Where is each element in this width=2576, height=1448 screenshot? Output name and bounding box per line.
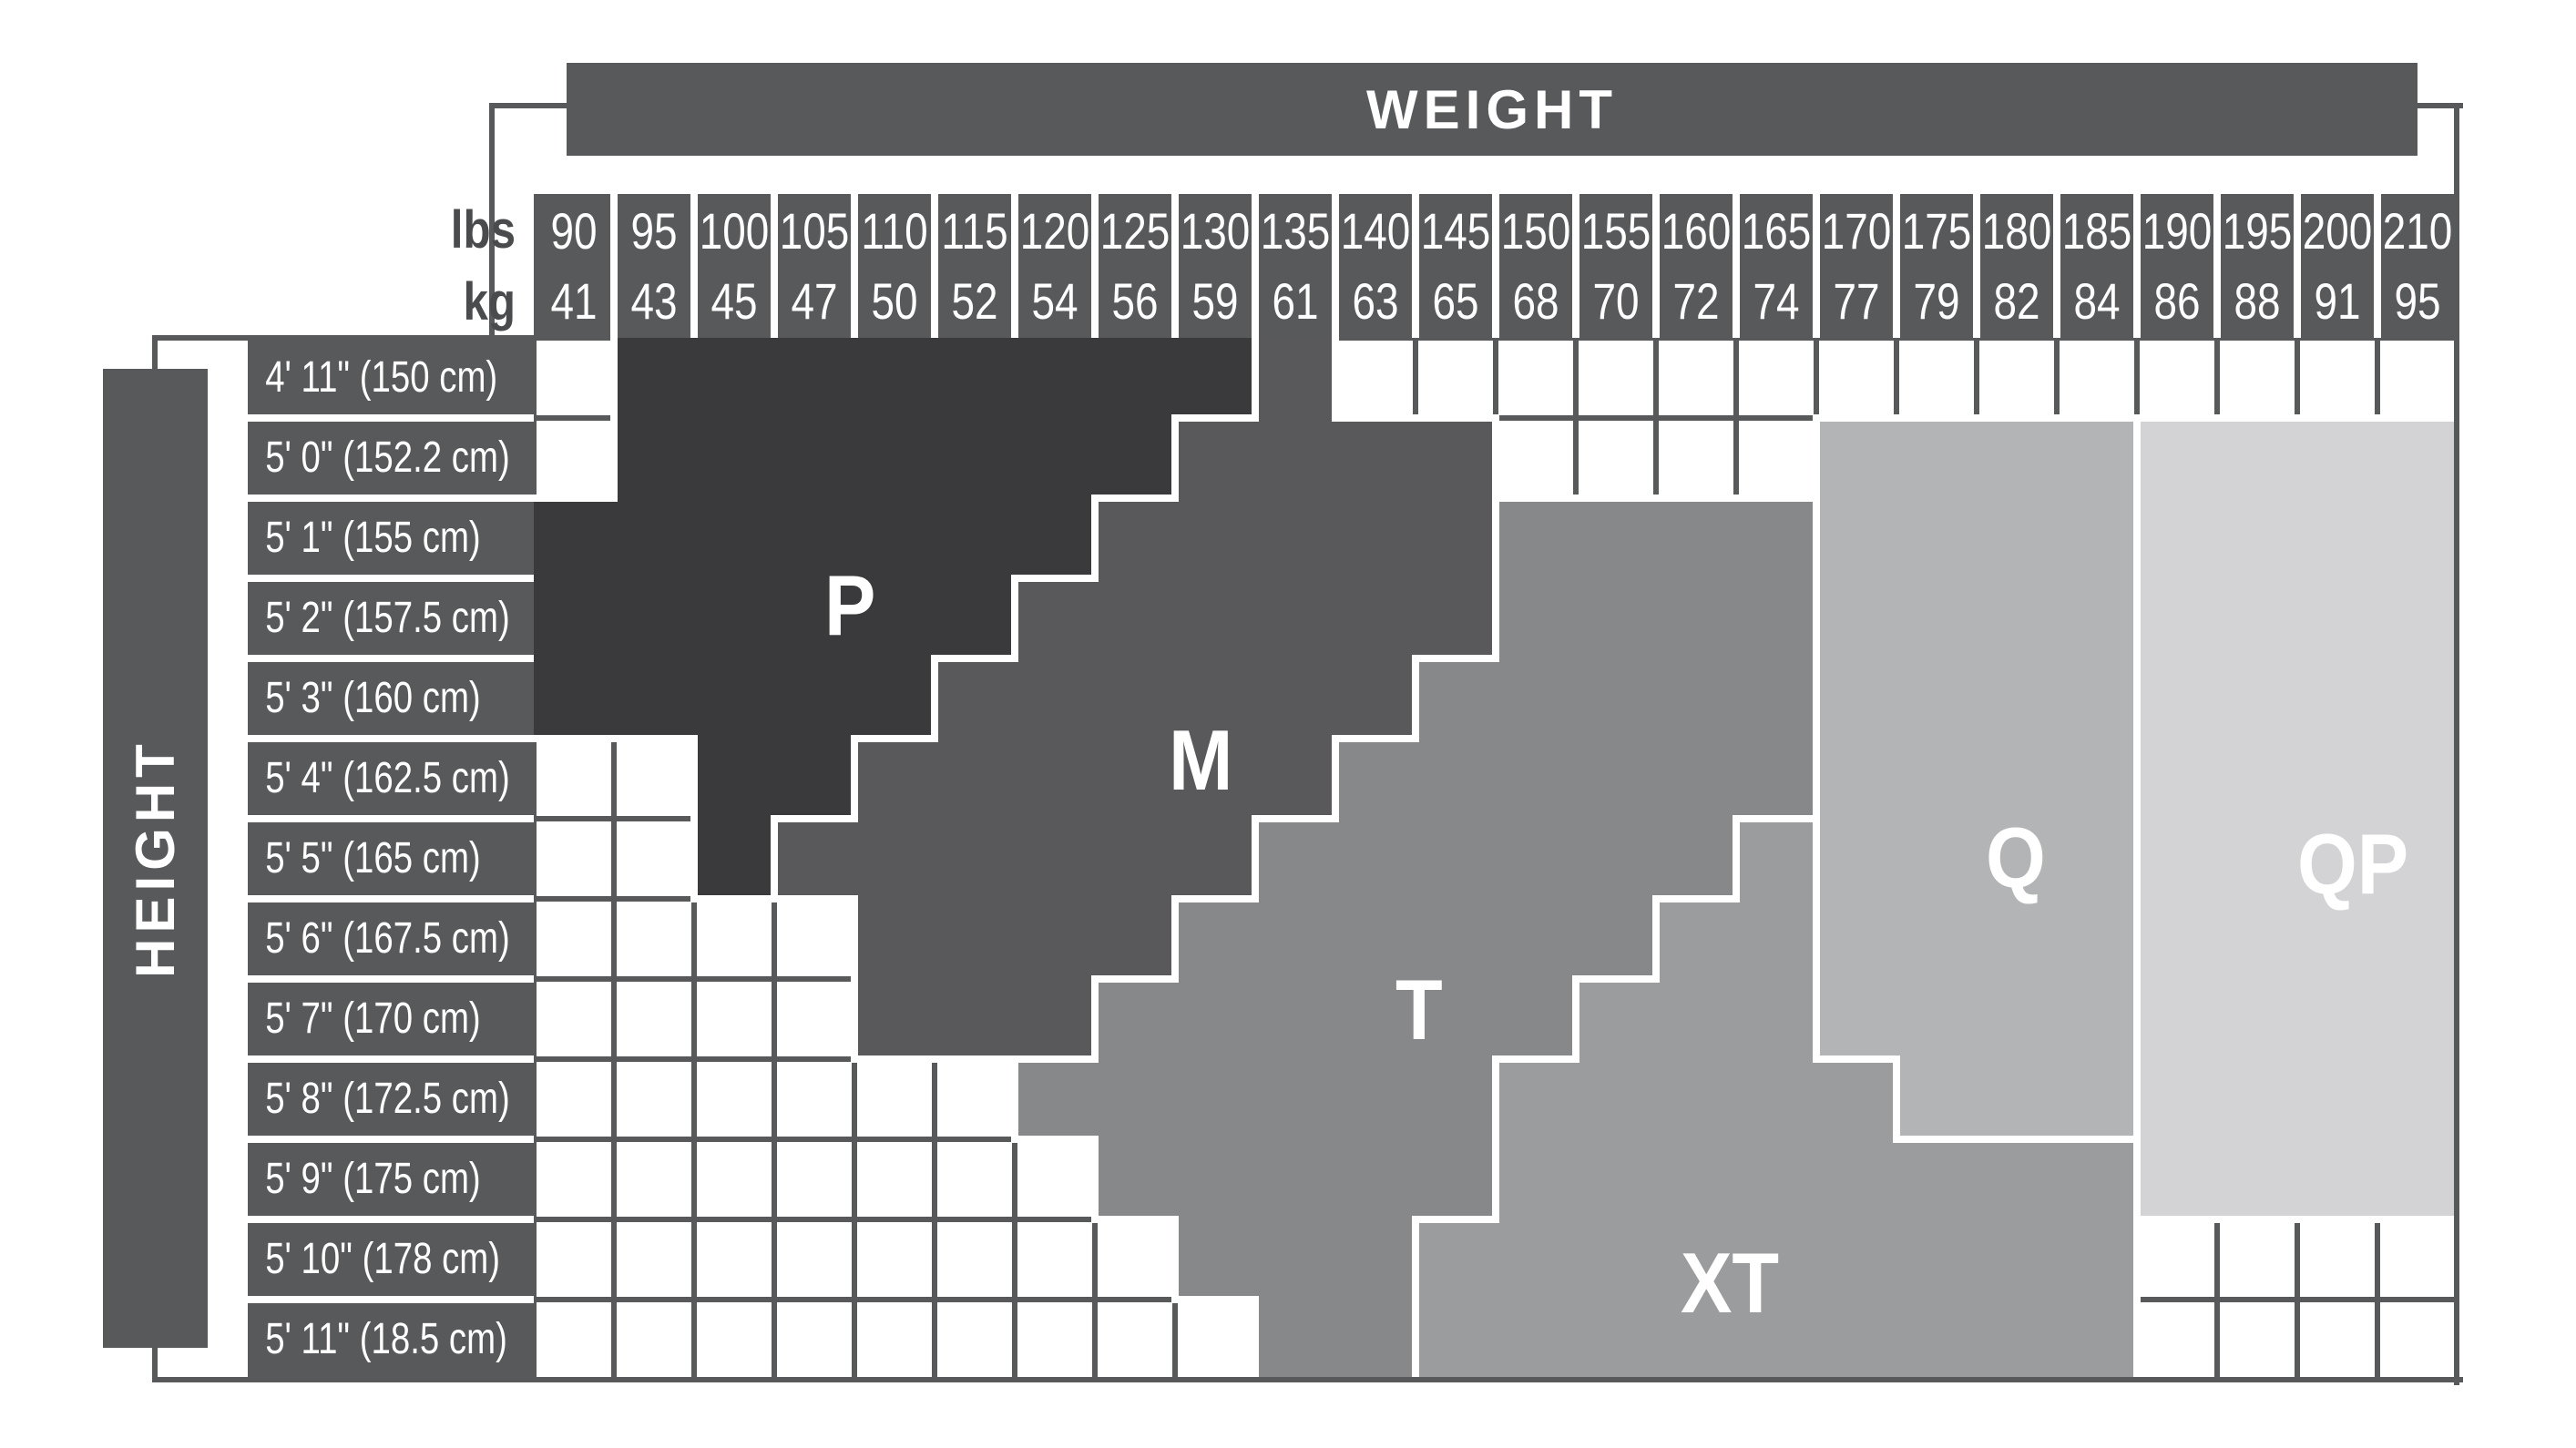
grid-cell-R (2377, 739, 2458, 820)
weight-header-separator (2213, 194, 2221, 338)
lattice-line (772, 979, 777, 1059)
height-label-text: 5' 1" (155 cm) (248, 516, 481, 560)
region-boundary (1652, 495, 1740, 502)
region-boundary (1252, 1296, 1259, 1383)
region-boundary (851, 735, 858, 822)
lattice-line (774, 976, 854, 982)
lattice-line (614, 976, 694, 982)
weight-axis-banner: WEIGHT (567, 63, 2418, 156)
grid-cell-M (935, 899, 1016, 980)
grid-cell-R (2297, 498, 2378, 579)
lattice-line (935, 1297, 1015, 1302)
region-boundary (1813, 575, 1820, 662)
grid-cell-R (2297, 418, 2378, 499)
lattice-line (534, 1056, 614, 1062)
region-boundary (690, 735, 698, 822)
lattice-line (534, 1217, 614, 1222)
weight-kg-value: 59 (1182, 266, 1248, 336)
grid-cell-R (2377, 1139, 2458, 1220)
grid-cell-Q (1816, 498, 1897, 579)
grid-cell-T (1736, 739, 1817, 820)
lattice-line (2297, 1297, 2377, 1302)
lattice-line (932, 1300, 937, 1380)
grid-cell-M (1255, 418, 1336, 499)
lattice-line (691, 899, 697, 979)
grid-cell-M (1095, 578, 1176, 659)
region-boundary (2213, 414, 2301, 422)
height-label: 5' 9" (175 cm) (248, 1139, 534, 1219)
grid-cell-T (1576, 658, 1657, 739)
grid-cell-Q (1977, 979, 2058, 1060)
height-label: 5' 5" (165 cm) (248, 819, 534, 899)
grid-cell-M (935, 658, 1016, 739)
region-boundary (1332, 334, 1339, 422)
grid-cell-M (1015, 899, 1096, 980)
grid-cell-M (1175, 418, 1256, 499)
lattice-line (1095, 1297, 1175, 1302)
weight-axis-title: WEIGHT (1366, 78, 1618, 141)
height-label: 5' 6" (167.5 cm) (248, 899, 534, 979)
height-label-text: 5' 0" (152.2 cm) (248, 436, 510, 480)
grid-cell-T (1175, 1219, 1256, 1300)
region-boundary (1492, 414, 1499, 502)
grid-cell-X (1816, 1139, 1897, 1220)
grid-cell-X (1656, 899, 1737, 980)
grid-cell-P (935, 498, 1016, 579)
weight-lbs-value: 160 (1663, 196, 1729, 266)
weight-kg-value: 47 (782, 266, 847, 336)
grid-cell-R (2377, 498, 2458, 579)
grid-cell-X (1977, 1139, 2058, 1220)
grid-cell-T (1175, 1139, 1256, 1220)
lattice-line (1656, 415, 1736, 421)
region-boundary (931, 1055, 1018, 1063)
grid-cell-Q (1896, 899, 1978, 980)
region-boundary (2133, 735, 2141, 822)
region-boundary (1893, 1136, 1980, 1143)
grid-cell-T (1496, 578, 1577, 659)
weight-lbs-value: 155 (1583, 196, 1649, 266)
weight-lbs-value: 125 (1102, 196, 1168, 266)
grid-cell-X (1416, 1219, 1497, 1300)
height-label-text: 5' 4" (162.5 cm) (248, 757, 510, 800)
grid-cell-T (1656, 498, 1737, 579)
region-boundary (2133, 1136, 2141, 1223)
grid-cell-P (534, 498, 615, 579)
height-label-text: 5' 2" (157.5 cm) (248, 597, 510, 640)
weight-header-separator (2374, 194, 2381, 338)
lattice-line (1573, 418, 1579, 498)
grid-cell-M (1416, 498, 1497, 579)
region-boundary (1572, 495, 1660, 502)
grid-cell-M (935, 739, 1016, 820)
grid-cell-R (2217, 418, 2298, 499)
grid-cell-R (2217, 498, 2298, 579)
grid-cell-P (694, 819, 775, 900)
region-boundary (1813, 1055, 1900, 1063)
grid-cell-T (1175, 899, 1256, 980)
grid-cell-X (2057, 1219, 2138, 1300)
region-boundary (771, 895, 858, 902)
grid-cell-P (694, 739, 775, 820)
height-label-text: 5' 7" (170 cm) (248, 997, 481, 1041)
grid-cell-T (1736, 498, 1817, 579)
grid-cell-P (1015, 338, 1096, 419)
lattice-line (1894, 338, 1899, 418)
region-boundary (1813, 414, 1820, 502)
grid-cell-X (1896, 1300, 1978, 1381)
grid-cell-T (1656, 739, 1737, 820)
region-boundary (2133, 815, 2141, 902)
weight-kg-value: 82 (1984, 266, 2050, 336)
grid-cell-X (1416, 1300, 1497, 1381)
weight-lbs-value: 210 (2385, 196, 2450, 266)
weight-kg-value: 86 (2144, 266, 2210, 336)
weight-lbs-value: 175 (1904, 196, 1969, 266)
weight-kg-value: 95 (2385, 266, 2450, 336)
grid-cell-P (694, 578, 775, 659)
lattice-line (1576, 415, 1656, 421)
grid-cell-X (1896, 1139, 1978, 1220)
grid-cell-M (1255, 498, 1336, 579)
lattice-line (1814, 338, 1819, 418)
grid-cell-P (1175, 338, 1256, 419)
grid-cell-R (2217, 819, 2298, 900)
grid-cell-X (1576, 1139, 1657, 1220)
region-boundary (1091, 975, 1099, 1063)
lattice-line (932, 1219, 937, 1300)
grid-cell-P (1095, 338, 1176, 419)
region-boundary (1893, 1055, 1900, 1143)
lattice-line (2377, 1297, 2458, 1302)
weight-lbs-value: 140 (1343, 196, 1408, 266)
lattice-line (534, 816, 614, 821)
lattice-line (534, 896, 614, 902)
grid-cell-P (614, 498, 695, 579)
region-boundary (2133, 895, 2141, 983)
grid-cell-P (614, 658, 695, 739)
grid-cell-Q (1816, 739, 1897, 820)
grid-cell-R (2137, 819, 2218, 900)
grid-cell-M (1335, 418, 1416, 499)
grid-cell-P (854, 338, 935, 419)
lattice-line (534, 976, 614, 982)
grid-cell-Q (1896, 1059, 1978, 1140)
unit-label-lbs: lbs (332, 194, 516, 266)
region-boundary (530, 735, 618, 742)
weight-header-separator (2053, 194, 2060, 338)
grid-cell-M (1255, 338, 1336, 419)
region-boundary (1091, 495, 1179, 502)
grid-cell-Q (1977, 899, 2058, 980)
weight-header-separator (1652, 194, 1660, 338)
grid-cell-P (534, 658, 615, 739)
lattice-line (2295, 338, 2300, 418)
region-boundary (1171, 895, 1259, 902)
grid-cell-X (1816, 1059, 1897, 1140)
grid-cell-Q (2057, 739, 2138, 820)
region-boundary (1171, 414, 1259, 422)
grid-cell-Q (1816, 658, 1897, 739)
lattice-line (774, 1297, 854, 1302)
grid-cell-Q (2057, 498, 2138, 579)
grid-cell-X (1656, 1059, 1737, 1140)
grid-cell-Q (1977, 578, 2058, 659)
height-label: 5' 11" (18.5 cm) (248, 1300, 534, 1380)
grid-cell-X (1977, 1219, 2058, 1300)
weight-header-separator (1171, 194, 1179, 338)
lattice-line (691, 1300, 697, 1380)
lattice-line (1974, 338, 1979, 418)
height-label: 5' 10" (178 cm) (248, 1219, 534, 1300)
grid-cell-P (854, 418, 935, 499)
lattice-line (614, 1297, 694, 1302)
lattice-line (854, 1137, 935, 1142)
region-boundary (610, 334, 618, 422)
weight-lbs-value: 135 (1262, 196, 1328, 266)
grid-cell-P (774, 418, 855, 499)
grid-cell-Q (2057, 658, 2138, 739)
lattice-line (611, 1300, 617, 1380)
region-boundary (1412, 1216, 1419, 1303)
grid-cell-T (1255, 979, 1336, 1060)
region-boundary (690, 895, 778, 902)
lattice-line (611, 979, 617, 1059)
grid-cell-Q (1896, 979, 1978, 1060)
region-boundary (1652, 895, 1740, 902)
lattice-line (2054, 338, 2060, 418)
lattice-line (614, 816, 694, 821)
grid-cell-X (1736, 1139, 1817, 1220)
weight-kg-value: 50 (862, 266, 927, 336)
grid-cell-M (1095, 819, 1176, 900)
grid-cell-R (2217, 979, 2298, 1060)
grid-cell-X (1576, 1059, 1657, 1140)
weight-lbs-value: 100 (701, 196, 767, 266)
grid-cell-X (1496, 1219, 1577, 1300)
weight-header-separator (1973, 194, 1980, 338)
lattice-line (772, 1219, 777, 1300)
lattice-line (691, 1059, 697, 1139)
grid-cell-M (1416, 578, 1497, 659)
region-boundary (2133, 495, 2141, 582)
grid-cell-X (2057, 1300, 2138, 1381)
grid-cell-M (1175, 578, 1256, 659)
height-label-text: 5' 8" (172.5 cm) (248, 1077, 510, 1121)
lattice-line (772, 899, 777, 979)
region-boundary (931, 655, 1018, 662)
lattice-line (935, 1137, 1015, 1142)
grid-cell-T (1416, 819, 1497, 900)
lattice-line (611, 1219, 617, 1300)
region-boundary (2133, 1296, 2141, 1383)
region-boundary (1492, 575, 1499, 662)
grid-cell-T (1416, 1059, 1497, 1140)
height-label: 5' 2" (157.5 cm) (248, 578, 534, 658)
weight-kg-value: 43 (621, 266, 687, 336)
grid-cell-P (534, 578, 615, 659)
grid-cell-R (2137, 739, 2218, 820)
grid-cell-T (1416, 658, 1497, 739)
region-boundary (2133, 1216, 2141, 1303)
lattice-line (1092, 1300, 1098, 1380)
grid-cell-Q (1896, 819, 1978, 900)
grid-cell-R (2297, 1059, 2378, 1140)
region-boundary (1813, 815, 1820, 902)
grid-cell-R (2297, 578, 2378, 659)
height-label: 5' 0" (152.2 cm) (248, 418, 534, 498)
grid-cell-Q (1896, 418, 1978, 499)
height-label: 5' 3" (160 cm) (248, 658, 534, 739)
region-boundary (1492, 495, 1579, 502)
grid-cell-R (2137, 1059, 2218, 1140)
grid-cell-M (1015, 979, 1096, 1060)
region-boundary (1652, 895, 1660, 983)
weight-lbs-value: 190 (2144, 196, 2210, 266)
weight-kg-value: 88 (2224, 266, 2290, 336)
height-label-text: 5' 9" (175 cm) (248, 1157, 481, 1201)
grid-cell-T (1015, 1059, 1096, 1140)
lattice-line (2214, 338, 2220, 418)
weight-lbs-value: 145 (1423, 196, 1488, 266)
lattice-line (611, 1059, 617, 1139)
grid-cell-T (1335, 1219, 1416, 1300)
grid-cell-M (1416, 418, 1497, 499)
region-boundary (2133, 414, 2221, 422)
region-boundary (1252, 815, 1259, 902)
lattice-line (611, 1139, 617, 1219)
grid-cell-T (1255, 899, 1336, 980)
grid-cell-P (614, 418, 695, 499)
lattice-line (1653, 338, 1659, 418)
lattice-line (774, 1217, 854, 1222)
grid-cell-P (774, 338, 855, 419)
height-label-text: 5' 11" (18.5 cm) (248, 1318, 507, 1361)
region-boundary (2213, 1216, 2301, 1223)
weight-lbs-value: 95 (621, 196, 687, 266)
grid-cell-T (1576, 899, 1657, 980)
grid-cell-M (854, 739, 935, 820)
grid-cell-R (2137, 1139, 2218, 1220)
grid-cell-T (1095, 979, 1176, 1060)
region-boundary (851, 735, 938, 742)
grid-cell-X (1816, 1219, 1897, 1300)
region-boundary (610, 735, 698, 742)
grid-cell-M (935, 979, 1016, 1060)
lattice-line (854, 1217, 935, 1222)
grid-cell-Q (1896, 658, 1978, 739)
region-boundary (1011, 1136, 1099, 1143)
grid-cell-P (1095, 418, 1176, 499)
lattice-line (1733, 338, 1739, 418)
grid-cell-R (2137, 498, 2218, 579)
grid-cell-M (1015, 819, 1096, 900)
region-boundary (1332, 414, 1419, 422)
region-boundary (1813, 735, 1820, 822)
height-label: 5' 1" (155 cm) (248, 498, 534, 578)
grid-cell-M (1095, 739, 1176, 820)
lattice-line (1015, 1217, 1095, 1222)
grid-cell-Q (2057, 578, 2138, 659)
grid-cell-M (935, 819, 1016, 900)
weight-kg-value: 91 (2305, 266, 2370, 336)
weight-lbs-value: 115 (942, 196, 1007, 266)
lattice-line (852, 1219, 857, 1300)
grid-cell-T (1255, 819, 1336, 900)
lattice-line (2137, 1297, 2217, 1302)
grid-cell-P (774, 739, 855, 820)
lattice-line (614, 1217, 694, 1222)
grid-cell-R (2377, 658, 2458, 739)
lattice-line (1733, 418, 1739, 498)
grid-cell-T (1496, 739, 1577, 820)
lattice-line (2295, 1219, 2300, 1300)
grid-cell-Q (2057, 418, 2138, 499)
lattice-line (932, 1059, 937, 1139)
grid-cell-P (1015, 498, 1096, 579)
region-boundary (1733, 495, 1820, 502)
weight-kg-value: 61 (1262, 266, 1328, 336)
region-boundary (851, 1055, 938, 1063)
grid-cell-X (2057, 1139, 2138, 1220)
height-label: 4' 11" (150 cm) (248, 338, 534, 418)
lattice-line (1493, 338, 1498, 418)
lattice-line (935, 1217, 1015, 1222)
weight-header-separator (1893, 194, 1900, 338)
height-label: 5' 4" (162.5 cm) (248, 739, 534, 819)
weight-header-separator (1572, 194, 1579, 338)
weight-header-separator (931, 194, 938, 338)
lattice-line (1015, 1297, 1095, 1302)
region-boundary (2374, 414, 2461, 422)
grid-cell-T (1335, 1059, 1416, 1140)
grid-cell-T (1335, 1300, 1416, 1381)
region-boundary (1492, 1055, 1499, 1143)
weight-header-separator (1091, 194, 1099, 338)
grid-cell-T (1656, 819, 1737, 900)
grid-cell-P (774, 658, 855, 739)
grid-cell-P (854, 658, 935, 739)
grid-cell-R (2137, 899, 2218, 980)
grid-cell-M (854, 899, 935, 980)
grid-cell-R (2297, 739, 2378, 820)
region-boundary (2133, 1055, 2141, 1143)
region-boundary (1011, 575, 1018, 662)
region-boundary (1893, 414, 1980, 422)
lattice-line (852, 1139, 857, 1219)
grid-cell-R (2217, 578, 2298, 659)
grid-cell-R (2137, 658, 2218, 739)
lattice-line (772, 1300, 777, 1380)
grid-cell-Q (1816, 899, 1897, 980)
grid-cell-Q (2057, 979, 2138, 1060)
lattice-line (2375, 1300, 2380, 1380)
grid-cell-X (1576, 1219, 1657, 1300)
grid-cell-T (1255, 1139, 1336, 1220)
grid-cell-T (1255, 1300, 1336, 1381)
region-boundary (2374, 1216, 2461, 1223)
lattice-line (2375, 338, 2380, 418)
grid-cell-T (1255, 1219, 1336, 1300)
grid-cell-X (1496, 1300, 1577, 1381)
grid-cell-T (1576, 578, 1657, 659)
lattice-line (852, 1059, 857, 1139)
grid-cell-P (935, 338, 1016, 419)
grid-cell-R (2297, 658, 2378, 739)
grid-cell-X (1736, 1059, 1817, 1140)
grid-cell-M (854, 819, 935, 900)
weight-lbs-value: 110 (862, 196, 927, 266)
